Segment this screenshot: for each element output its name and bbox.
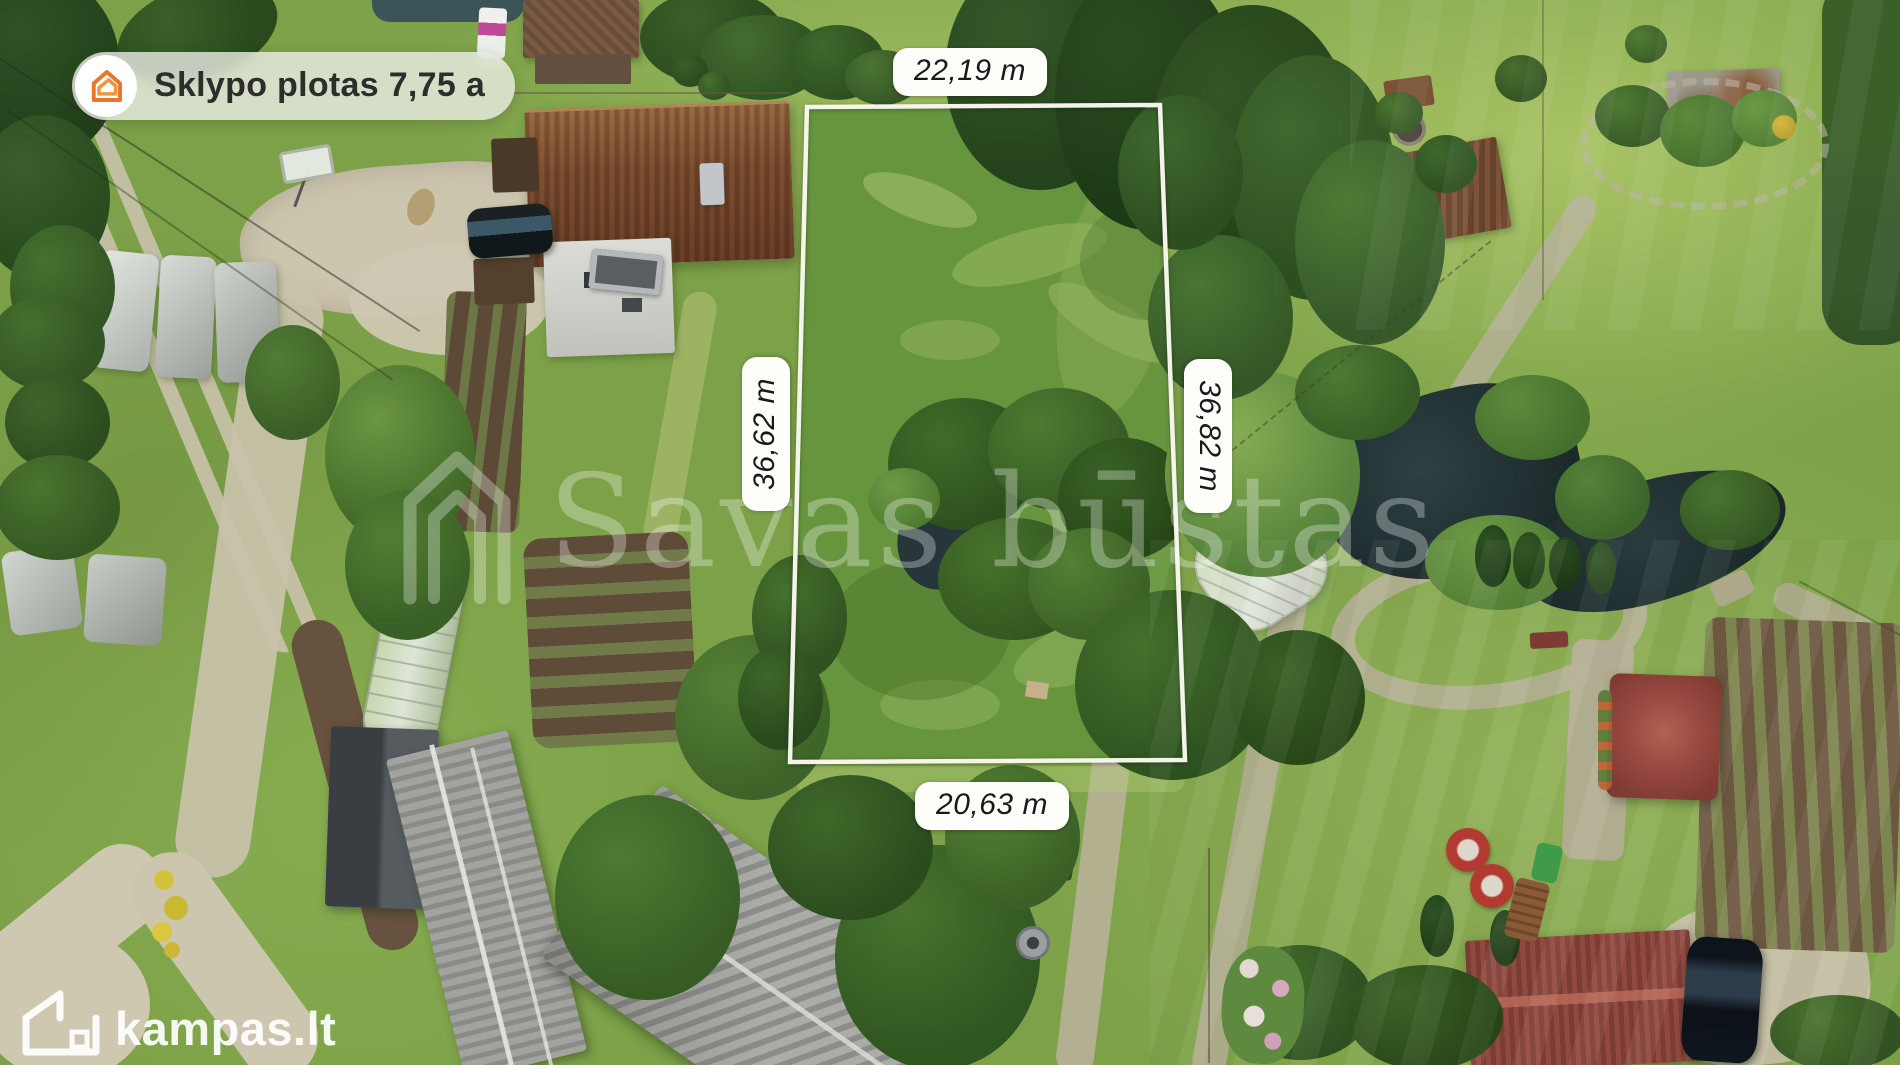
dimension-label-left: 36,62 m [742,357,790,511]
house-icon [85,65,127,107]
area-badge: Sklypo plotas 7,75 a [72,52,515,120]
plot-boundary-outline [0,0,1900,1065]
brand-logo-text: kampas.lt [115,1005,336,1060]
dimension-label-bottom: 20,63 m [915,782,1069,830]
plot-boundary-polygon [790,105,1185,762]
dimension-label-top: 22,19 m [893,48,1047,96]
area-badge-label: Sklypo plotas 7,75 a [154,66,485,105]
brand-logo: kampas.lt [14,986,336,1060]
badge-icon-circle [75,55,137,117]
dimension-label-right: 36,82 m [1184,359,1232,513]
aerial-photo: Savas būstas 22,19 m 36,62 m 36,82 m 20,… [0,0,1900,1065]
kampas-house-icon [14,986,102,1060]
